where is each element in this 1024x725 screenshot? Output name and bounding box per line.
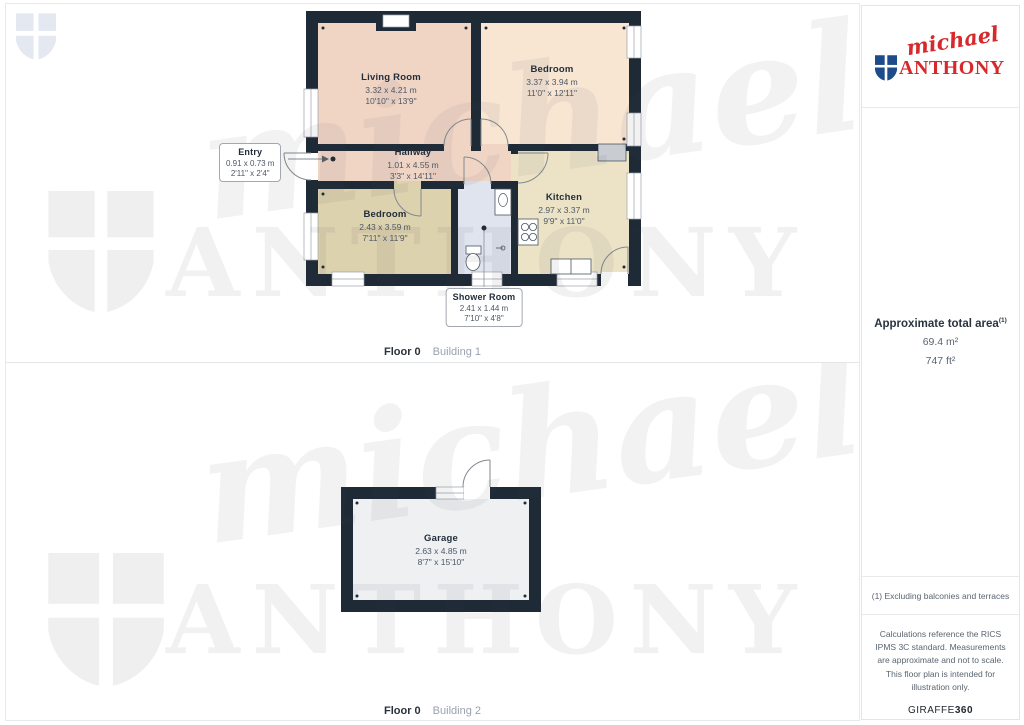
info-sidebar: michael ANTHONY Approximate total area(1… [861,5,1020,720]
room-label-living-room: Living Room 3.32 x 4.21 m 10'10" x 13'9" [361,72,421,106]
shield-logo-icon [875,55,897,81]
disclaimer-section: Calculations reference the RICS IPMS 3C … [862,614,1019,719]
basin-icon [495,189,511,215]
shower-room-callout: Shower Room 2.41 x 1.44 m 7'10" x 4'8" [446,288,523,327]
room-label-hallway: Hallway 1.01 x 4.55 m 3'3" x 14'11" [387,147,439,181]
room-label-bedroom-bottom: Bedroom 2.43 x 3.59 m 7'11" x 11'9" [359,209,411,243]
floorplan-panel-building-1: michael ANTHONY Living Room 3.32 x 4.21 … [6,4,859,363]
floor-caption-building-2: Floor 0Building 2 [384,705,481,717]
floorplan-main-area: michael ANTHONY Living Room 3.32 x 4.21 … [5,3,860,721]
entry-callout: Entry 0.91 x 0.73 m 2'11" x 2'4" [219,143,281,182]
room-label-bedroom-top: Bedroom 3.37 x 3.94 m 11'0" x 12'11" [526,64,578,98]
logo-script-text: michael [905,21,1001,60]
sink-icon [551,259,591,274]
room-label-garage: Garage 2.63 x 4.85 m 8'7" x 15'10" [415,533,467,567]
floorplan-panel-building-2: michael ANTHONY Garage 2.63 x 4.85 m 8'7… [6,363,859,722]
floor-caption-building-1: Floor 0Building 1 [384,346,481,358]
total-area-title: Approximate total area(1) [874,317,1007,330]
total-area-ft2: 747 ft² [926,355,956,367]
total-area-m2: 69.4 m² [923,336,959,348]
toilet-icon [466,246,481,271]
total-area-section: Approximate total area(1) 69.4 m² 747 ft… [862,108,1019,576]
footnote-text: (1) Excluding balconies and terraces [862,576,1019,614]
floorplan-page: michael ANTHONY Living Room 3.32 x 4.21 … [0,0,1024,725]
room-label-kitchen: Kitchen 2.97 x 3.37 m 9'9" x 11'0" [538,192,590,226]
building-1-plan-drawing [6,4,859,363]
logo-caps-text: ANTHONY [899,57,1005,80]
agency-logo: michael ANTHONY [862,6,1019,108]
giraffe360-brand: GIRAFFE360 [873,705,1008,716]
stove-icon [518,219,538,245]
disclaimer-text: Calculations reference the RICS IPMS 3C … [873,628,1008,694]
footnote-marker: (1) [999,317,1007,324]
